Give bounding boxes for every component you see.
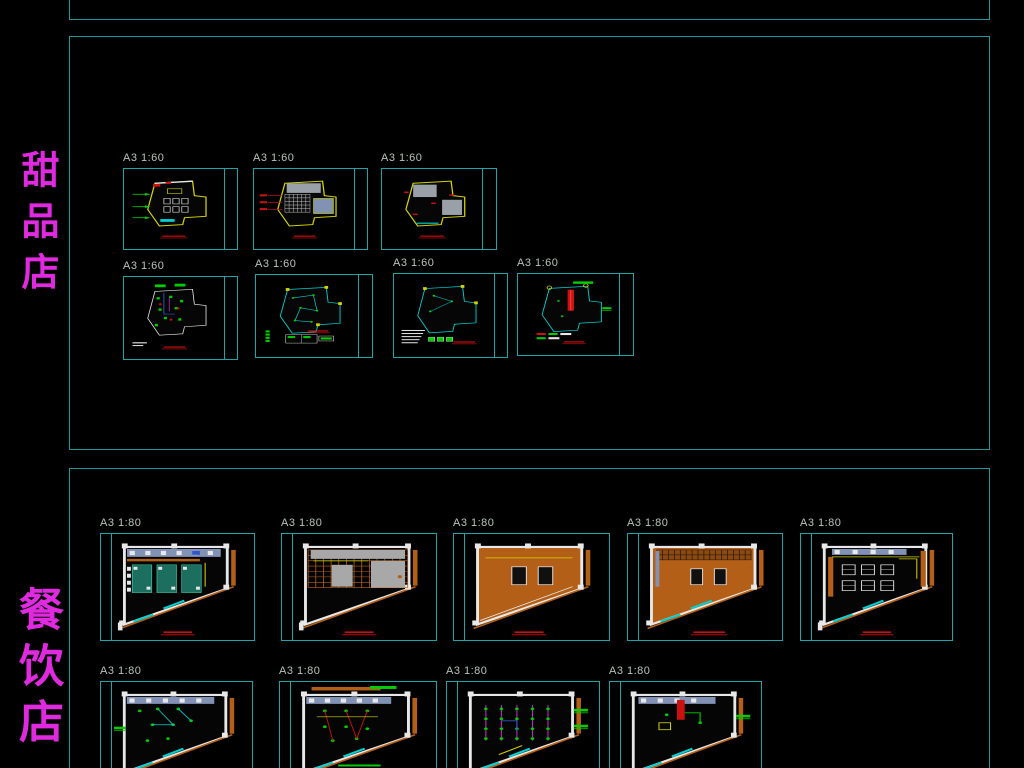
sheet-titleblock-line: [224, 277, 225, 359]
sheet-restaurant-sheets-9: A3 1:80: [609, 681, 762, 768]
sheet-scale-label: A3 1:80: [446, 665, 487, 677]
floor-plan-drawing-d-switch: [398, 280, 488, 351]
sheet-scale-label: A3 1:60: [253, 152, 294, 164]
sheet-scale-label: A3 1:80: [453, 517, 494, 529]
sheet-scale-label: A3 1:80: [279, 665, 320, 677]
sheet-titleblock-line: [290, 682, 291, 768]
floor-plan-drawing-c-ceiling: [295, 537, 426, 636]
sheet-restaurant-sheets-6: A3 1:80: [100, 681, 253, 768]
sheet-dessert-sheets-2: A3 1:60: [253, 168, 368, 250]
sheet-dessert-sheets-7: A3 1:60: [517, 273, 634, 356]
sheet-restaurant-sheets-5: A3 1:80: [800, 533, 953, 641]
sheet-scale-label: A3 1:80: [609, 665, 650, 677]
top-strip-border: [69, 0, 990, 20]
sheet-titleblock-line: [482, 169, 483, 249]
floor-plan-drawing-c-floor1: [467, 537, 599, 636]
sheet-scale-label: A3 1:80: [627, 517, 668, 529]
sheet-titleblock-line: [619, 274, 620, 355]
sheet-scale-label: A3 1:60: [255, 258, 296, 270]
floor-plan-drawing-d-wiring: [260, 281, 352, 352]
sheet-titleblock-line: [464, 534, 465, 640]
sheet-titleblock-line: [354, 169, 355, 249]
sheet-restaurant-sheets-8: A3 1:80: [446, 681, 600, 768]
sheet-scale-label: A3 1:80: [281, 517, 322, 529]
floor-plan-drawing-d-fire: [522, 280, 613, 350]
floor-plan-drawing-d-electric: [128, 283, 218, 354]
sheet-titleblock-line: [111, 534, 112, 640]
floor-plan-drawing-d-ceiling: [258, 175, 348, 244]
floor-plan-drawing-d-floor: [386, 175, 476, 244]
floor-plan-drawing-c-elec4: [623, 685, 752, 768]
sheet-titleblock-line: [292, 534, 293, 640]
sheet-titleblock-line: [224, 169, 225, 249]
floor-plan-drawing-c-floor2: [641, 537, 772, 636]
sheet-scale-label: A3 1:60: [381, 152, 422, 164]
sheet-scale-label: A3 1:80: [100, 517, 141, 529]
sheet-dessert-sheets-4: A3 1:60: [123, 276, 238, 360]
sheet-restaurant-sheets-3: A3 1:80: [453, 533, 610, 641]
sheet-dessert-sheets-6: A3 1:60: [393, 273, 508, 358]
sheet-titleblock-line: [638, 534, 639, 640]
sheet-scale-label: A3 1:60: [393, 257, 434, 269]
sheet-scale-label: A3 1:80: [800, 517, 841, 529]
sheet-restaurant-sheets-2: A3 1:80: [281, 533, 437, 641]
sheet-dessert-sheets-5: A3 1:60: [255, 274, 373, 358]
floor-plan-drawing-c-elec2: [293, 685, 426, 768]
sheet-titleblock-line: [620, 682, 621, 768]
sheet-scale-label: A3 1:60: [123, 152, 164, 164]
floor-plan-drawing-d-furniture: [128, 175, 218, 244]
side-label-restaurant: 餐饮店: [14, 586, 59, 754]
sheet-scale-label: A3 1:60: [123, 260, 164, 272]
sheet-scale-label: A3 1:60: [517, 257, 558, 269]
floor-plan-drawing-c-layout: [114, 537, 244, 636]
floor-plan-drawing-c-elec1: [114, 685, 243, 768]
sheet-titleblock-line: [358, 275, 359, 357]
side-label-dessert-shop: 甜品店: [17, 150, 55, 303]
sheet-dessert-sheets-3: A3 1:60: [381, 168, 497, 250]
sheet-titleblock-line: [494, 274, 495, 357]
sheet-titleblock-line: [457, 682, 458, 768]
sheet-titleblock-line: [111, 682, 112, 768]
sheet-titleblock-line: [811, 534, 812, 640]
floor-plan-drawing-c-elec3: [460, 685, 589, 768]
sheet-dessert-sheets-1: A3 1:60: [123, 168, 238, 250]
sheet-restaurant-sheets-4: A3 1:80: [627, 533, 783, 641]
sheet-restaurant-sheets-1: A3 1:80: [100, 533, 255, 641]
sheet-scale-label: A3 1:80: [100, 665, 141, 677]
cad-preview-canvas: 甜品店 餐饮店 A3 1:60A3 1:60A3 1:60A3 1:60A3 1…: [0, 0, 1024, 768]
floor-plan-drawing-c-furniture: [814, 537, 943, 636]
sheet-restaurant-sheets-7: A3 1:80: [279, 681, 437, 768]
